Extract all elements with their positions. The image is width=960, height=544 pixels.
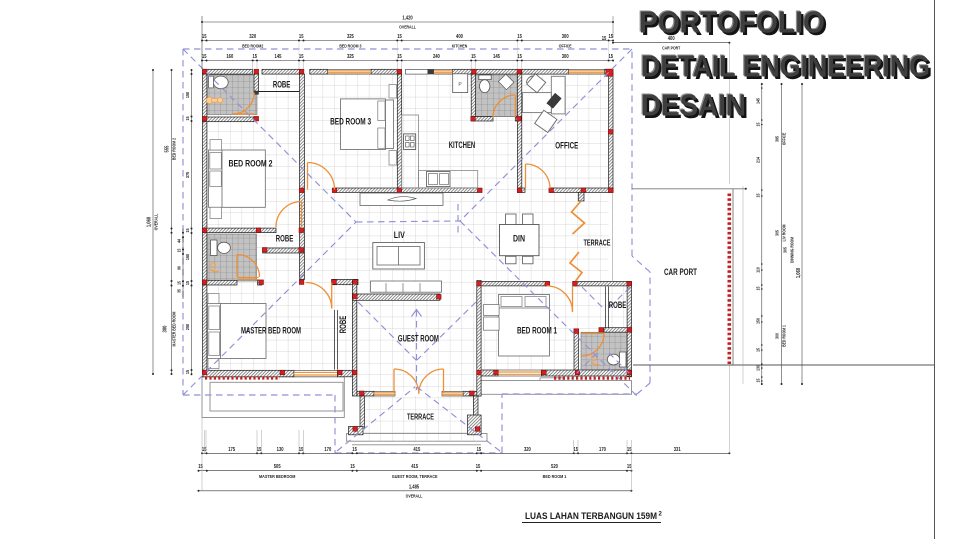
svg-text:15: 15 (350, 464, 355, 471)
svg-text:505: 505 (274, 464, 281, 471)
svg-text:130: 130 (755, 364, 761, 371)
svg-text:375: 375 (185, 171, 191, 178)
svg-text:15: 15 (471, 54, 476, 61)
svg-text:214: 214 (755, 156, 761, 163)
svg-text:LIV: LIV (394, 230, 405, 240)
svg-text:520: 520 (551, 464, 558, 471)
svg-text:15: 15 (755, 347, 761, 352)
svg-text:170: 170 (324, 446, 331, 453)
svg-text:15: 15 (608, 34, 613, 41)
svg-text:DIN: DIN (513, 234, 525, 244)
svg-text:BED ROOM 3: BED ROOM 3 (339, 43, 362, 49)
svg-text:OVERALL: OVERALL (406, 493, 423, 499)
svg-text:DETAIL ENGINEERING: DETAIL ENGINEERING (641, 49, 930, 84)
svg-text:400: 400 (456, 34, 463, 41)
svg-text:15: 15 (352, 446, 357, 453)
svg-text:15: 15 (299, 34, 304, 41)
svg-text:GUEST ROOM: GUEST ROOM (398, 334, 439, 344)
svg-text:320: 320 (249, 34, 256, 41)
svg-text:PORTOFOLIO: PORTOFOLIO (639, 5, 825, 40)
svg-text:160: 160 (226, 54, 233, 61)
svg-text:GUEST ROOM, TERRACE: GUEST ROOM, TERRACE (392, 473, 438, 479)
svg-text:OFFICE: OFFICE (555, 140, 578, 150)
svg-text:130: 130 (277, 446, 284, 453)
svg-text:15: 15 (573, 446, 578, 453)
svg-text:LUAS LAHAN TERBANGUN 159M: LUAS LAHAN TERBANGUN 159M (525, 511, 657, 522)
svg-text:15: 15 (202, 34, 207, 41)
svg-text:15: 15 (185, 116, 191, 121)
svg-text:15: 15 (517, 54, 522, 61)
svg-text:LIV ROOM: LIV ROOM (781, 224, 787, 242)
svg-text:300: 300 (162, 325, 169, 332)
svg-text:415: 415 (413, 446, 420, 453)
svg-text:15: 15 (185, 280, 191, 285)
svg-text:15: 15 (299, 54, 304, 61)
svg-text:DESAIN: DESAIN (641, 88, 746, 123)
svg-text:300: 300 (562, 34, 569, 41)
svg-text:15: 15 (397, 54, 402, 61)
svg-text:OVERALL: OVERALL (153, 213, 159, 230)
svg-text:415: 415 (411, 464, 418, 471)
svg-text:175: 175 (228, 446, 235, 453)
svg-text:15: 15 (517, 34, 522, 41)
svg-text:1,060: 1,060 (796, 268, 803, 279)
svg-text:OFFICE: OFFICE (781, 132, 787, 145)
svg-text:145: 145 (493, 54, 500, 61)
svg-text:BED ROOM 1: BED ROOM 1 (781, 324, 787, 346)
svg-text:15: 15 (252, 54, 257, 61)
svg-text:MASTER BED ROOM: MASTER BED ROOM (171, 311, 177, 346)
svg-text:ROBE: ROBE (276, 234, 294, 244)
svg-text:170: 170 (599, 446, 606, 453)
svg-text:395: 395 (774, 135, 780, 142)
svg-text:DINNING ROOM: DINNING ROOM (789, 236, 795, 263)
svg-text:1,420: 1,420 (402, 15, 413, 22)
svg-text:15: 15 (397, 34, 402, 41)
svg-text:MASTER BEDROOM: MASTER BEDROOM (259, 473, 296, 479)
svg-text:305: 305 (774, 229, 780, 236)
svg-text:ROBE: ROBE (338, 316, 348, 334)
svg-text:110: 110 (755, 267, 761, 273)
svg-text:325: 325 (347, 54, 354, 61)
svg-text:15: 15 (257, 446, 262, 453)
svg-text:KITCHEN: KITCHEN (452, 43, 468, 49)
svg-text:BED ROOM 1: BED ROOM 1 (517, 326, 557, 336)
svg-text:240: 240 (433, 54, 440, 61)
svg-text:15: 15 (755, 378, 761, 383)
svg-text:15: 15 (198, 464, 203, 471)
svg-text:15: 15 (185, 369, 191, 374)
svg-text:ROBE: ROBE (609, 300, 627, 310)
svg-text:BED ROOM2: BED ROOM2 (242, 43, 264, 49)
svg-text:BED ROOM 3: BED ROOM 3 (330, 116, 371, 126)
svg-text:325: 325 (347, 34, 354, 41)
svg-text:156: 156 (755, 317, 761, 324)
svg-text:OFFICE: OFFICE (559, 43, 572, 49)
svg-text:15: 15 (202, 54, 207, 61)
svg-text:15: 15 (608, 54, 613, 61)
svg-text:ROBE: ROBE (273, 80, 291, 90)
svg-text:15: 15 (185, 228, 191, 233)
svg-text:145: 145 (275, 54, 282, 61)
svg-text:BED ROOM 2: BED ROOM 2 (229, 159, 273, 169)
svg-text:150: 150 (185, 91, 191, 98)
svg-text:15: 15 (299, 446, 304, 453)
svg-text:160: 160 (185, 253, 191, 260)
svg-text:555: 555 (164, 145, 171, 152)
svg-text:TERRACE: TERRACE (407, 412, 434, 421)
svg-text:KITCHEN: KITCHEN (449, 140, 476, 150)
svg-text:BED ROOM 2: BED ROOM 2 (171, 137, 177, 160)
svg-text:15: 15 (476, 464, 481, 471)
svg-text:1,485: 1,485 (409, 484, 420, 491)
svg-text:OVERALL: OVERALL (399, 24, 416, 30)
svg-text:320: 320 (524, 446, 531, 453)
svg-text:15: 15 (627, 464, 632, 471)
svg-text:CAR PORT: CAR PORT (664, 267, 697, 277)
svg-text:MASTER BED ROOM: MASTER BED ROOM (241, 326, 301, 336)
svg-text:331: 331 (674, 446, 681, 453)
svg-text:15: 15 (755, 193, 761, 198)
svg-text:300: 300 (562, 54, 569, 61)
svg-text:145: 145 (755, 97, 761, 104)
svg-text:1,060: 1,060 (146, 217, 153, 228)
svg-text:15: 15 (627, 446, 632, 453)
svg-text:250: 250 (185, 323, 191, 330)
svg-text:15: 15 (755, 286, 761, 291)
svg-text:15: 15 (602, 36, 607, 43)
svg-text:305: 305 (782, 246, 788, 253)
svg-text:15: 15 (755, 122, 761, 127)
svg-text:300: 300 (774, 332, 780, 339)
svg-text:15: 15 (477, 446, 482, 453)
svg-text:BED ROOM 1: BED ROOM 1 (543, 473, 567, 479)
svg-text:TERRACE: TERRACE (584, 239, 611, 248)
